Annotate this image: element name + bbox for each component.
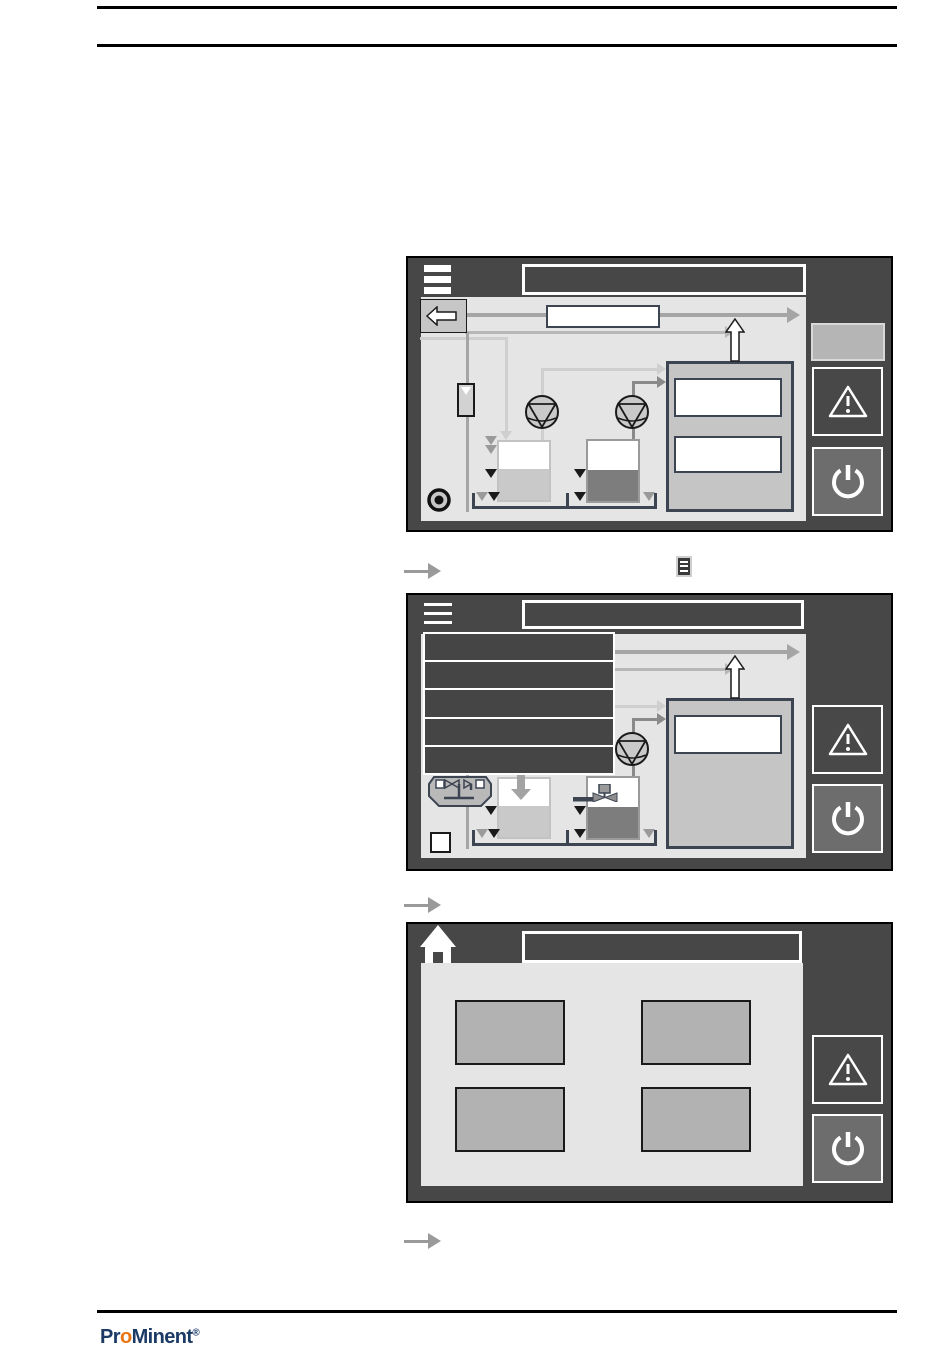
drip-tray-tick	[654, 830, 657, 846]
result-arrow-icon	[404, 563, 441, 579]
pump2-line-h	[632, 381, 657, 384]
unit-value-field-2	[674, 436, 782, 473]
menu-button-icon	[676, 556, 692, 577]
tank1	[497, 440, 551, 502]
unit-value-field-1	[674, 715, 782, 754]
home-tile-2[interactable]	[641, 1000, 751, 1065]
menu-item-1[interactable]	[425, 634, 613, 660]
back-arrow-icon	[426, 306, 458, 326]
prominent-logo: ProMinent®	[100, 1326, 199, 1349]
title-field	[522, 931, 802, 963]
manual-page: ProMinent®	[0, 0, 950, 1360]
level-marker-icon	[476, 829, 488, 838]
menu-hamburger-icon[interactable]	[424, 265, 451, 298]
level-marker-icon	[485, 806, 497, 815]
tank1-feed-line	[505, 337, 508, 431]
level-marker-icon	[574, 469, 586, 478]
warning-icon	[828, 385, 868, 419]
left-line	[466, 332, 469, 512]
up-arrow-icon	[725, 655, 745, 699]
level-marker-icon	[485, 469, 497, 478]
power-icon	[830, 463, 866, 501]
home-main-area	[421, 963, 803, 1186]
drip-tray-tick	[472, 493, 475, 509]
power-button[interactable]	[812, 447, 883, 516]
drip-tray	[472, 506, 657, 509]
up-arrow-icon	[725, 318, 745, 362]
logo-text-rest: Minent	[132, 1326, 193, 1348]
logo-registered-mark: ®	[192, 1327, 199, 1338]
top-rule-1	[97, 6, 897, 9]
screenshot-home-screen	[406, 922, 893, 1203]
level-marker-icon	[485, 445, 497, 454]
dropdown-menu	[423, 632, 615, 775]
level-marker-icon	[476, 492, 488, 501]
pump2-icon	[614, 394, 650, 430]
warning-button[interactable]	[812, 367, 883, 436]
result-arrow-icon	[404, 1233, 441, 1249]
main-pipe-arrowhead-icon	[787, 644, 800, 660]
home-tile-1[interactable]	[455, 1000, 565, 1065]
warning-icon	[828, 1053, 868, 1087]
pump1-line-h	[541, 368, 657, 371]
pump2-line-arrowhead-icon	[657, 713, 666, 725]
tank2-level	[588, 470, 638, 501]
drip-tray-tick	[654, 493, 657, 509]
pump2-line-h	[632, 718, 657, 721]
drip-tray-tick	[566, 830, 569, 846]
pump2-line-arrowhead-icon	[657, 376, 666, 388]
process-diagram	[421, 297, 806, 521]
menu-item-3[interactable]	[425, 688, 613, 716]
home-icon[interactable]	[420, 925, 456, 966]
home-tile-3[interactable]	[455, 1087, 565, 1152]
motor-valve-icon	[573, 784, 623, 802]
warning-icon	[828, 723, 868, 757]
tank2	[586, 439, 640, 503]
power-icon	[830, 800, 866, 838]
tank1-feed-arrowhead-icon	[500, 431, 512, 440]
menu-item-5[interactable]	[425, 745, 613, 773]
pump1-line-arrowhead-icon	[657, 363, 666, 375]
record-indicator-icon[interactable]	[426, 487, 452, 513]
level-marker-icon	[574, 829, 586, 838]
valve-manifold-icon	[428, 776, 492, 807]
stop-indicator-icon[interactable]	[430, 832, 451, 853]
title-field	[522, 264, 806, 295]
warning-button[interactable]	[812, 705, 883, 774]
level-marker-icon	[574, 806, 586, 815]
logo-text: Pr	[100, 1326, 120, 1348]
logo-text-o: o	[120, 1326, 132, 1348]
power-button[interactable]	[812, 1114, 883, 1183]
bottom-rule	[97, 1310, 897, 1313]
flow-meter-icon	[457, 383, 475, 417]
drip-tray-tick	[566, 493, 569, 509]
status-field[interactable]	[811, 323, 885, 361]
unit-value-field-1	[674, 378, 782, 417]
power-button[interactable]	[812, 784, 883, 853]
menu-item-4[interactable]	[425, 717, 613, 745]
level-marker-icon	[488, 492, 500, 501]
menu-hamburger-icon[interactable]	[424, 603, 452, 630]
tank1-level	[499, 469, 549, 500]
screenshot-process-overview	[406, 256, 893, 532]
result-arrow-icon	[404, 897, 441, 913]
top-rule-2	[97, 44, 897, 47]
pump1-icon	[524, 394, 560, 430]
drip-tray	[472, 843, 657, 846]
return-pipe	[465, 331, 725, 334]
feed-line	[420, 337, 507, 340]
level-marker-icon	[488, 829, 500, 838]
warning-button[interactable]	[812, 1035, 883, 1104]
treatment-unit	[666, 698, 794, 849]
level-marker-icon	[485, 436, 497, 445]
pump2-icon	[614, 731, 650, 767]
drip-tray-tick	[472, 830, 475, 846]
back-button[interactable]	[420, 299, 467, 333]
treatment-unit	[666, 361, 794, 512]
main-pipe-arrowhead-icon	[787, 307, 800, 323]
screenshot-menu-open	[406, 593, 893, 871]
home-tile-4[interactable]	[641, 1087, 751, 1152]
pump1-line-arrowhead-icon	[657, 700, 666, 712]
pipe-value-field	[546, 305, 660, 328]
menu-item-2[interactable]	[425, 660, 613, 688]
title-field	[522, 600, 804, 629]
power-icon	[830, 1130, 866, 1168]
level-marker-icon	[574, 492, 586, 501]
